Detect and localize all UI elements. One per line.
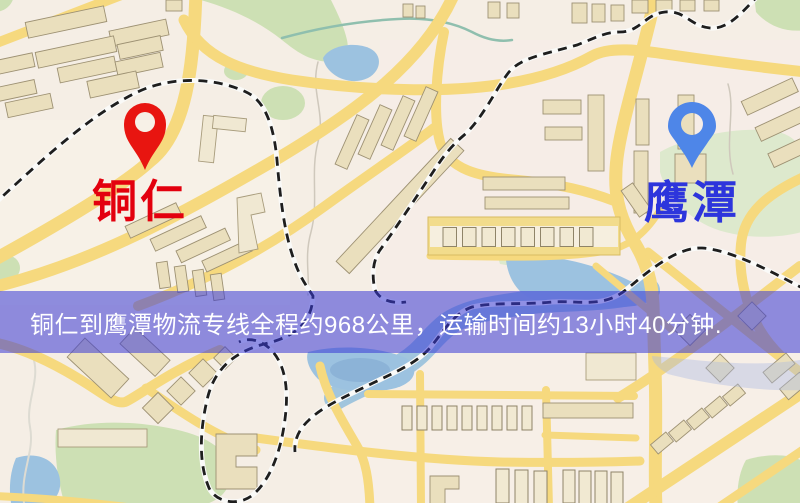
origin-city-label: 铜仁: [92, 179, 188, 224]
origin-pin-icon: [115, 100, 175, 174]
route-info-text: 铜仁到鹰潭物流专线全程约968公里，运输时间约13小时40分钟.: [0, 305, 722, 340]
map-background: [0, 0, 800, 503]
route-info-banner: 铜仁到鹰潭物流专线全程约968公里，运输时间约13小时40分钟.: [0, 291, 800, 353]
destination-city-label: 鹰潭: [644, 180, 740, 225]
destination-pin-icon: [662, 98, 722, 172]
logistics-route-map: 铜仁 鹰潭 铜仁到鹰潭物流专线全程约968公里，运输时间约13小时40分钟.: [0, 0, 800, 503]
